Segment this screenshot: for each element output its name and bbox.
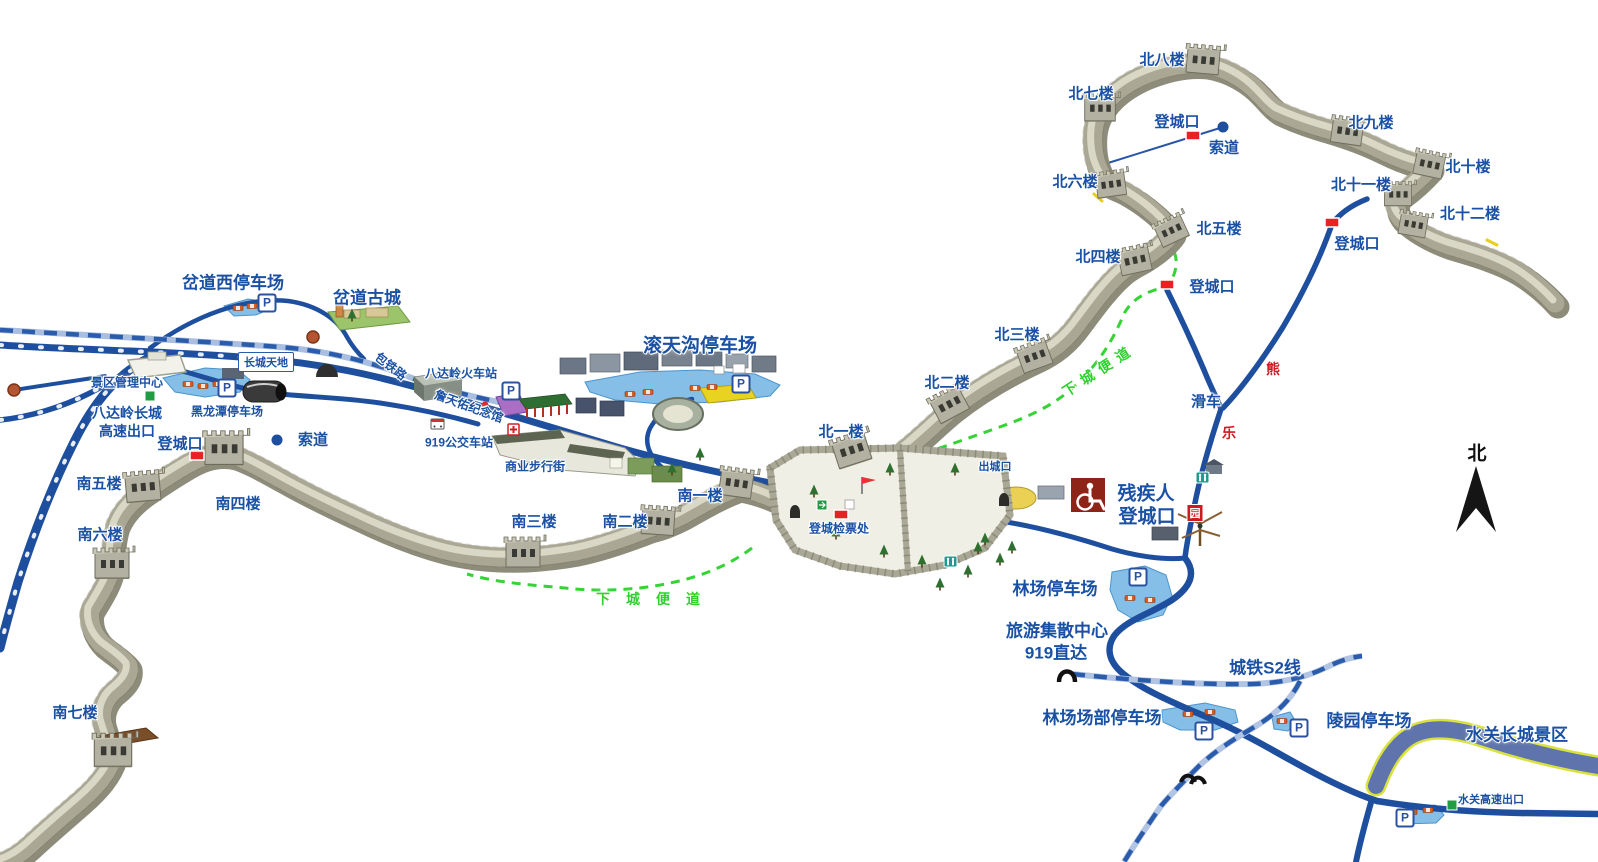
- zhantianyou-memorial: 詹天佑纪念馆: [432, 386, 505, 427]
- lingyuan-parking: 陵园停车场: [1327, 707, 1412, 732]
- cableway-north: 索道: [1209, 137, 1239, 158]
- badaling-expwy-exit-line2: 高速出口: [99, 421, 155, 441]
- parking-sign-heilongtan: P: [218, 379, 237, 398]
- tower-bei-6: 北六楼: [1052, 171, 1097, 192]
- descend-path-east: 下城便道: [1058, 339, 1139, 402]
- tower-bei-1: 北一楼: [818, 421, 863, 442]
- entrance-north-cableway: 登城口: [1154, 111, 1199, 132]
- badaling-expwy-exit-line1: 八达岭长城: [92, 403, 162, 423]
- chadao-ancient-town: 岔道古城: [333, 284, 401, 309]
- s2-rail-line: 城铁S2线: [1229, 654, 1301, 679]
- tower-nan-6: 南六楼: [77, 524, 122, 545]
- parking-sign-linchang-hq: P: [1195, 722, 1214, 741]
- cableway-west: 索道: [298, 429, 328, 450]
- tower-bei-3: 北三楼: [994, 324, 1039, 345]
- parking-sign-linchang: P: [1129, 568, 1148, 587]
- tower-bei-7: 北七楼: [1068, 83, 1113, 104]
- badaling-rail-station: 八达岭火车站: [425, 365, 497, 382]
- compass-north-label: 北: [1467, 439, 1486, 466]
- tower-bei-5: 北五楼: [1196, 218, 1241, 239]
- bear-park-char-yuan: 园: [1187, 504, 1204, 522]
- tower-nan-3: 南三楼: [511, 511, 556, 532]
- tower-nan-4: 南四楼: [215, 493, 260, 514]
- tower-bei-9: 北九楼: [1348, 112, 1393, 133]
- slide-car: 滑车: [1191, 391, 1221, 412]
- tower-bei-2: 北二楼: [924, 372, 969, 393]
- tower-bei-11: 北十一楼: [1331, 174, 1391, 195]
- tower-nan-7: 南七楼: [52, 702, 97, 723]
- tower-bei-8: 北八楼: [1139, 49, 1184, 70]
- great-wall-tiandi: 长城天地: [238, 352, 294, 372]
- parking-sign-lingyuan: P: [1290, 719, 1309, 738]
- exit-city-gate: 出城口: [979, 458, 1012, 474]
- guntiangou-parking: 滚天沟停车场: [643, 331, 757, 358]
- badaling-map: 北八楼北七楼北九楼北十楼北十一楼北十二楼北六楼北五楼北四楼北三楼北二楼北一楼南一…: [0, 0, 1598, 862]
- parking-sign-shuiguan: P: [1396, 809, 1415, 828]
- tower-nan-1: 南一楼: [677, 485, 722, 506]
- shuiguan-expwy-exit: 水关高速出口: [1458, 791, 1524, 807]
- shuiguan-scenic-area: 水关长城景区: [1466, 721, 1568, 746]
- entrance-bei4: 登城口: [1189, 276, 1234, 297]
- jingbao-railway: 包铁路: [372, 348, 411, 384]
- descend-path-south: 下城便道: [596, 589, 716, 609]
- bear-park-char-xiong: 熊: [1266, 359, 1280, 379]
- bus-919-direct: 919直达: [1025, 639, 1087, 664]
- parking-sign-chadao: P: [258, 294, 277, 313]
- parking-sign-guntiangou: P: [732, 375, 751, 394]
- entrance-west: 登城口: [157, 433, 202, 454]
- linchang-hq-parking: 林场场部停车场: [1043, 704, 1162, 729]
- ticket-check: 登城检票处: [809, 520, 869, 537]
- parking-sign-zhantianyou: P: [502, 382, 521, 401]
- scenic-mgmt-center: 景区管理中心: [91, 374, 163, 391]
- tower-nan-5: 南五楼: [76, 473, 121, 494]
- linchang-parking: 林场停车场: [1013, 575, 1098, 600]
- map-labels: 北八楼北七楼北九楼北十楼北十一楼北十二楼北六楼北五楼北四楼北三楼北二楼北一楼南一…: [0, 0, 1598, 862]
- disabled-entrance-line2: 登城口: [1118, 502, 1175, 529]
- tower-bei-4: 北四楼: [1075, 246, 1120, 267]
- chadao-west-parking: 岔道西停车场: [182, 269, 284, 294]
- tower-nan-2: 南二楼: [602, 511, 647, 532]
- tower-bei-12: 北十二楼: [1440, 203, 1500, 224]
- bear-park-char-le: 乐: [1222, 423, 1236, 443]
- bus-919-station: 919公交车站: [425, 434, 493, 451]
- heilongtan-parking: 黑龙潭停车场: [191, 403, 263, 420]
- entrance-northeast: 登城口: [1334, 233, 1379, 254]
- tower-bei-10: 北十楼: [1445, 156, 1490, 177]
- commercial-street: 商业步行街: [505, 458, 565, 475]
